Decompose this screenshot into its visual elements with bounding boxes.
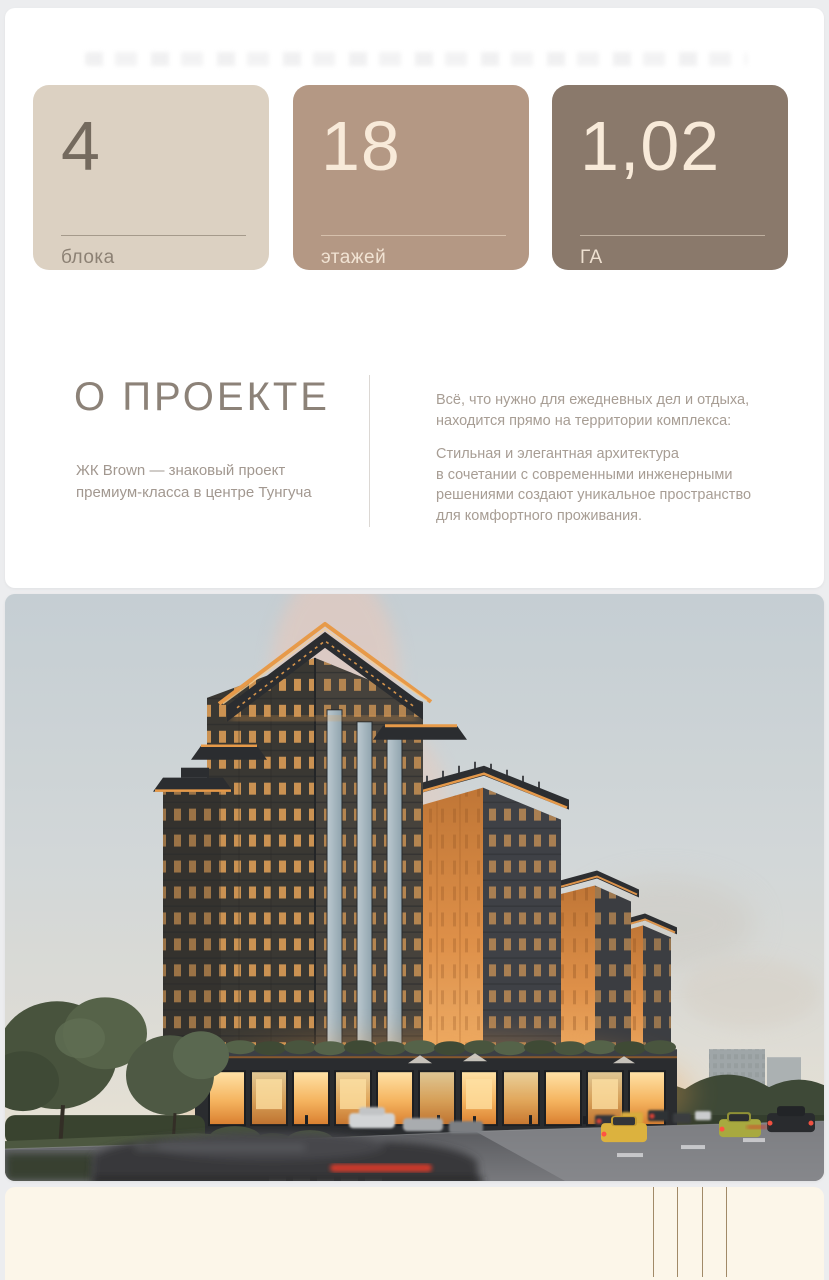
about-vertical-divider: [369, 375, 370, 527]
faded-header-artifact: [85, 52, 747, 66]
stat-value: 18: [321, 111, 401, 181]
stat-card-blocks: 4 блока: [33, 85, 269, 270]
footer-accent-line: [702, 1187, 703, 1277]
stat-label: ГА: [580, 247, 603, 269]
hero-image-section: [5, 594, 824, 1181]
building-complex-render: [5, 594, 824, 1181]
footer-accent-line: [653, 1187, 654, 1277]
about-description: Всё, что нужно для ежедневных дел и отды…: [436, 390, 766, 539]
about-paragraph-2: Стильная и элегантная архитектура в соче…: [436, 444, 766, 526]
stat-divider: [580, 235, 765, 236]
stat-label: блока: [61, 247, 115, 269]
stats-about-section: 4 блока 18 этажей 1,02 ГА О ПРОЕКТЕ ЖК B…: [5, 8, 824, 588]
stat-card-floors: 18 этажей: [293, 85, 529, 270]
footer-accent-line: [726, 1187, 727, 1277]
page: 4 блока 18 этажей 1,02 ГА О ПРОЕКТЕ ЖК B…: [0, 0, 829, 1280]
about-paragraph-1: Всё, что нужно для ежедневных дел и отды…: [436, 390, 766, 431]
footer-section: [5, 1187, 824, 1280]
footer-accent-line: [677, 1187, 678, 1277]
stat-divider: [321, 235, 506, 236]
stat-label: этажей: [321, 247, 386, 269]
about-subtitle: ЖК Brown — знаковый проект премиум-класс…: [76, 460, 376, 504]
stat-value: 1,02: [580, 111, 720, 181]
stat-divider: [61, 235, 246, 236]
stat-card-hectares: 1,02 ГА: [552, 85, 788, 270]
about-title: О ПРОЕКТЕ: [74, 375, 330, 420]
stat-value: 4: [61, 111, 101, 181]
